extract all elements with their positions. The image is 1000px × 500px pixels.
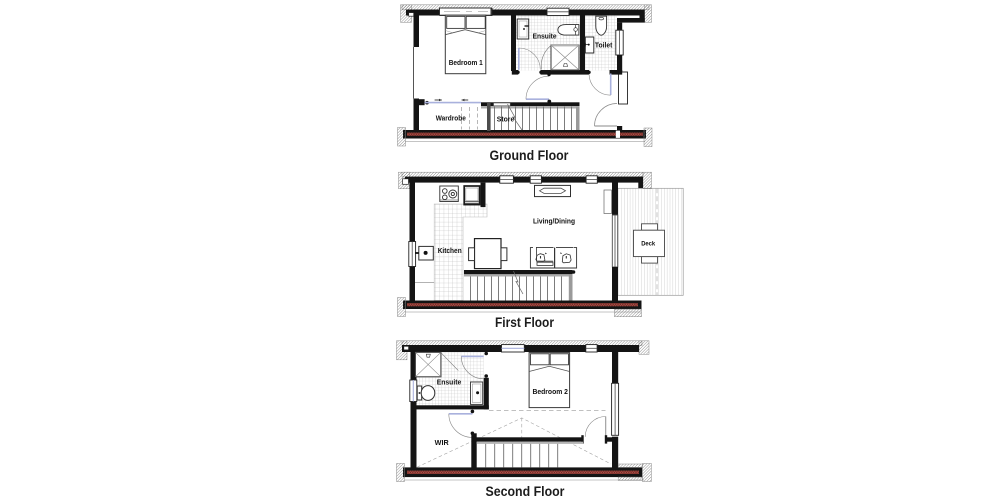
svg-text:Toilet: Toilet [595,40,613,49]
svg-text:Ensuite: Ensuite [437,377,462,386]
svg-text:WIR: WIR [435,438,450,447]
svg-text:Living/Dining: Living/Dining [533,217,575,226]
svg-text:Ground Floor: Ground Floor [490,147,569,163]
svg-text:First Floor: First Floor [495,314,554,330]
svg-text:Second Floor: Second Floor [486,483,565,499]
svg-text:Bedroom 2: Bedroom 2 [532,387,568,396]
svg-text:Bedroom 1: Bedroom 1 [449,58,483,67]
svg-text:Wardrobe: Wardrobe [436,114,466,123]
svg-text:Store: Store [497,114,515,123]
svg-text:Kitchen: Kitchen [438,246,462,255]
svg-text:Deck: Deck [641,240,656,247]
svg-text:Ensuite: Ensuite [533,31,557,40]
